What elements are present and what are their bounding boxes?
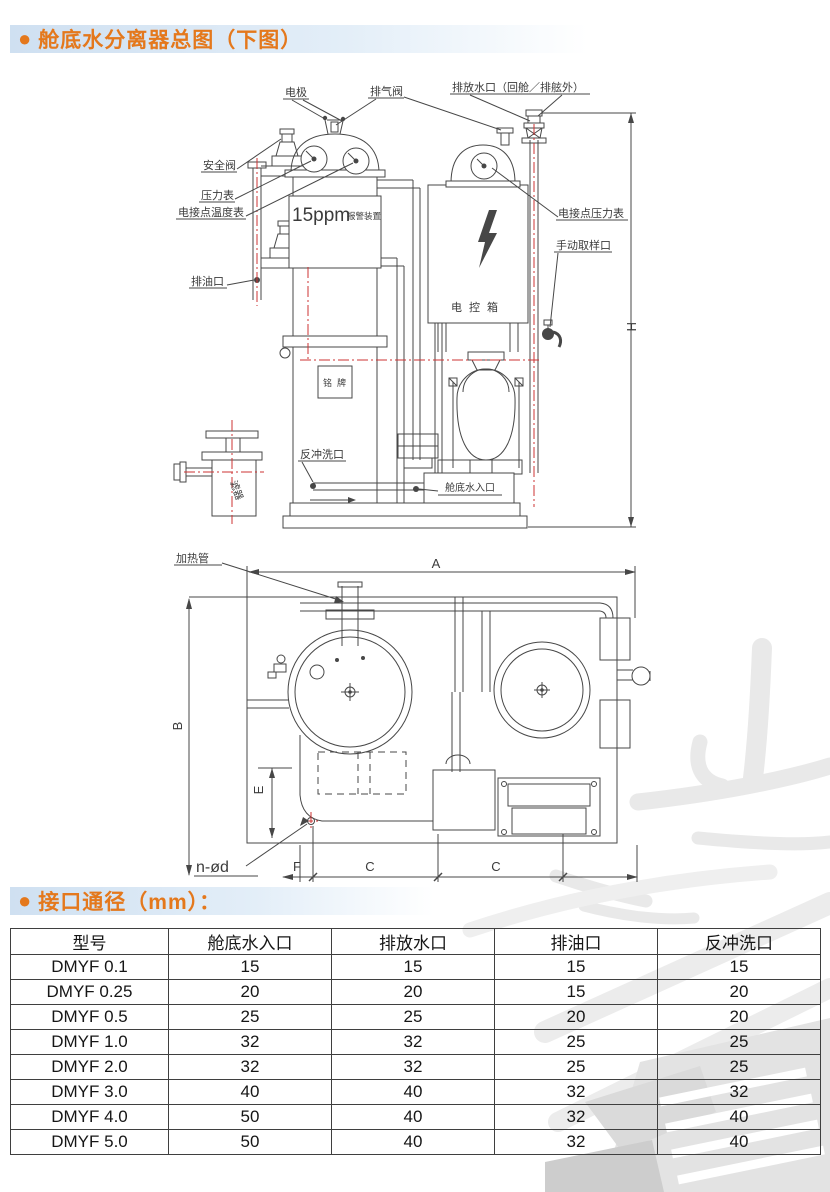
table-cell: 32: [169, 1055, 332, 1080]
label-vent-valve: 排气阀: [370, 84, 403, 98]
top-view-diagram: [186, 566, 650, 882]
table-row: DMYF 4.0 50 40 32 40: [11, 1105, 821, 1130]
hidden-component: [318, 752, 406, 794]
label-bilge-inlet: 舱底水入口: [445, 481, 495, 494]
label-manual-sampling: 手动取样口: [556, 238, 611, 252]
label-dim-e: E: [251, 785, 266, 794]
table-cell: 32: [332, 1030, 495, 1055]
table-header-cell: 排油口: [495, 929, 658, 955]
table-cell: DMYF 0.1: [11, 955, 169, 980]
table-cell: DMYF 5.0: [11, 1130, 169, 1155]
flow-arrow-icon: [348, 497, 356, 503]
table-cell: 25: [495, 1055, 658, 1080]
table-cell: DMYF 0.25: [11, 980, 169, 1005]
label-dim-a: A: [432, 556, 441, 571]
table-cell: 25: [658, 1055, 821, 1080]
label-oil-drain: 排油口: [191, 274, 224, 288]
front-view-diagram: [174, 110, 636, 528]
top-view-labels: 加热管 A B E F C C n-ød: [170, 551, 501, 876]
table-row: DMYF 2.0 32 32 25 25: [11, 1055, 821, 1080]
table-cell: 40: [332, 1080, 495, 1105]
label-discharge-port: 排放水口（回舱／排舷外）: [452, 80, 584, 94]
label-heating-pipe: 加热管: [176, 551, 209, 565]
table-cell: 32: [658, 1080, 821, 1105]
tank-circle-right: [494, 642, 590, 738]
table-cell: 40: [658, 1105, 821, 1130]
section-title-connections: 接口通径（mm）：: [38, 886, 221, 916]
table-cell: DMYF 1.0: [11, 1030, 169, 1055]
label-filter: 滤器: [227, 479, 246, 502]
table-cell: 40: [332, 1105, 495, 1130]
table-cell: 20: [169, 980, 332, 1005]
table-cell: 32: [495, 1080, 658, 1105]
table-cell: 32: [495, 1130, 658, 1155]
table-row: DMYF 3.0 40 40 32 32: [11, 1080, 821, 1105]
table-cell: DMYF 3.0: [11, 1080, 169, 1105]
connection-diameter-table: 型号 舱底水入口 排放水口 排油口 反冲洗口 DMYF 0.1 15 15 15…: [10, 928, 821, 1155]
section-title-overview: 舱底水分离器总图（下图）: [38, 24, 302, 54]
table-cell: 20: [658, 1005, 821, 1030]
table-cell: 25: [332, 1005, 495, 1030]
base-and-inlet: [283, 473, 527, 528]
label-ppm-value: 15ppm: [292, 205, 350, 226]
label-contact-thermometer: 电接点温度表: [178, 205, 244, 219]
label-pressure-gauge: 压力表: [201, 188, 234, 202]
dimension-a: [247, 566, 636, 618]
separator-vessel: [280, 116, 387, 503]
label-dim-f: F: [293, 859, 301, 874]
table-cell: 25: [169, 1005, 332, 1030]
pump-assembly-top-view: [433, 755, 600, 836]
table-cell: 15: [169, 955, 332, 980]
front-view-labels: 电极 排气阀 排放水口（回舱／排舷外） 安全阀 压力表 电接点温度表 排油口 1…: [176, 80, 639, 502]
table-header-cell: 排放水口: [332, 929, 495, 955]
table-cell: 32: [169, 1030, 332, 1055]
dome-tank: [446, 128, 520, 187]
table-cell: 20: [332, 980, 495, 1005]
table-cell: 50: [169, 1130, 332, 1155]
table-cell: DMYF 4.0: [11, 1105, 169, 1130]
table-row: DMYF 0.1 15 15 15 15: [11, 955, 821, 980]
label-dim-c-right: C: [491, 859, 500, 874]
table-cell: 25: [495, 1030, 658, 1055]
table-cell: 32: [332, 1055, 495, 1080]
label-backwash-port: 反冲洗口: [300, 447, 344, 461]
table-cell: 40: [332, 1130, 495, 1155]
label-dim-h: H: [624, 322, 639, 331]
connection-table-container: 型号 舱底水入口 排放水口 排油口 反冲洗口 DMYF 0.1 15 15 15…: [10, 928, 821, 1155]
table-header-cell: 型号: [11, 929, 169, 955]
sampling-faucet: [542, 320, 561, 347]
table-row: DMYF 1.0 32 32 25 25: [11, 1030, 821, 1055]
section-header-connections: ● 接口通径（mm）：: [10, 887, 456, 915]
label-contact-pressure-gauge: 电接点压力表: [558, 206, 624, 220]
electric-control-box: [428, 185, 528, 352]
label-electrode: 电极: [285, 85, 307, 99]
section-header-overview: ● 舱底水分离器总图（下图）: [10, 25, 618, 53]
table-row: DMYF 0.5 25 25 20 20: [11, 1005, 821, 1030]
pump: [398, 352, 523, 474]
table-cell: 15: [495, 955, 658, 980]
label-nameplate: 铭牌: [323, 377, 351, 388]
catalog-page: 电极 排气阀 排放水口（回舱／排舷外） 安全阀 压力表 电接点温度表 排油口 1…: [0, 0, 830, 1192]
table-cell: 40: [658, 1130, 821, 1155]
label-ppm-device: 报警装置: [347, 211, 382, 221]
dimension-e: [258, 768, 292, 838]
table-cell: DMYF 0.5: [11, 1005, 169, 1030]
bullet-icon: ●: [18, 28, 31, 50]
label-control-box: 电控箱: [451, 300, 505, 314]
bullet-icon: ●: [18, 890, 31, 912]
table-header-cell: 舱底水入口: [169, 929, 332, 955]
table-cell: 15: [495, 980, 658, 1005]
table-row: DMYF 0.25 20 20 15 20: [11, 980, 821, 1005]
table-cell: 20: [658, 980, 821, 1005]
table-cell: 32: [495, 1105, 658, 1130]
table-header-row: 型号 舱底水入口 排放水口 排油口 反冲洗口: [11, 929, 821, 955]
dimension-b: [186, 597, 247, 876]
heater-fitting: [326, 582, 374, 646]
table-cell: 25: [658, 1030, 821, 1055]
table-cell: 20: [495, 1005, 658, 1030]
table-cell: DMYF 2.0: [11, 1055, 169, 1080]
label-dim-c-left: C: [365, 859, 374, 874]
tank-circle-left: [288, 630, 412, 754]
table-cell: 40: [169, 1080, 332, 1105]
filter-unit: [174, 431, 262, 516]
label-hole-spec: n-ød: [196, 859, 229, 876]
table-cell: 15: [658, 955, 821, 980]
table-header-cell: 反冲洗口: [658, 929, 821, 955]
label-safety-valve: 安全阀: [203, 158, 236, 172]
table-row: DMYF 5.0 50 40 32 40: [11, 1130, 821, 1155]
table-cell: 15: [332, 955, 495, 980]
table-cell: 50: [169, 1105, 332, 1130]
label-dim-b: B: [170, 722, 185, 731]
